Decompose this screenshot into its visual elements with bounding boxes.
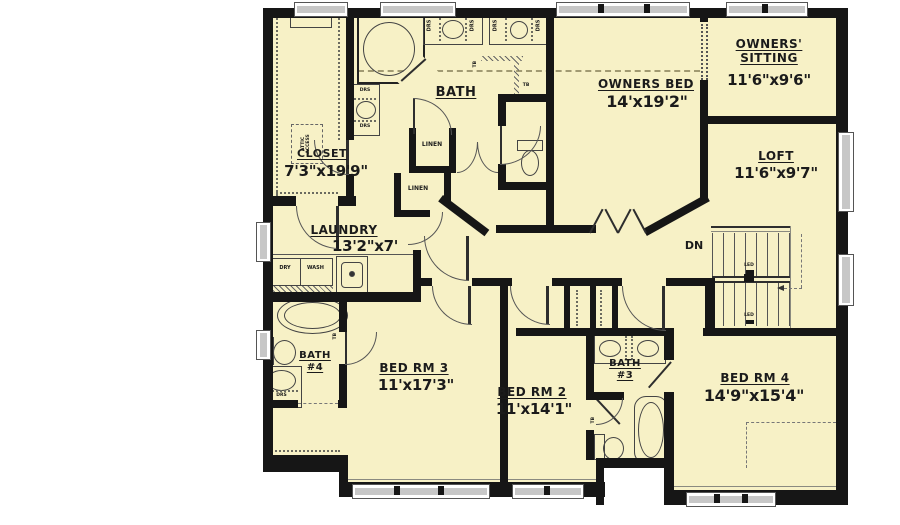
- stair-direction-path: [784, 288, 802, 289]
- wall: [586, 336, 594, 398]
- wall: [700, 116, 838, 124]
- wall: [590, 286, 596, 332]
- window: [686, 492, 776, 507]
- window-mullion: [644, 4, 650, 13]
- stair-rail: [711, 231, 791, 232]
- wall: [664, 336, 674, 360]
- wall: [498, 94, 506, 126]
- toilet: [603, 437, 624, 460]
- linen-label: LINEN: [412, 142, 452, 149]
- wall: [552, 278, 622, 286]
- room-label-laundry: LAUNDRY: [298, 224, 390, 238]
- room-label-closet: CLOSET: [282, 148, 362, 161]
- drawers-label: DRS: [537, 19, 542, 33]
- wall: [700, 8, 708, 22]
- drawers-label: DRS: [353, 89, 377, 94]
- wall: [596, 458, 672, 468]
- dryer: [271, 258, 301, 286]
- cased-opening: [701, 24, 703, 80]
- room-dims-closet: 7'3"x19'9": [264, 163, 388, 180]
- vanity-divider: [631, 336, 633, 360]
- vanity-divider: [625, 336, 627, 360]
- dryer-label: DRY: [271, 266, 299, 271]
- drawers-label: DRS: [471, 19, 476, 33]
- wall: [263, 400, 298, 408]
- wall: [263, 455, 347, 472]
- stair-direction-path: [801, 234, 802, 288]
- wall: [586, 430, 594, 460]
- wall: [612, 286, 618, 332]
- window: [352, 484, 490, 499]
- wall: [338, 400, 347, 408]
- room-label-bed4: BED RM 4: [706, 372, 804, 386]
- drawers-label: DRS: [428, 19, 433, 33]
- linen-label: LINEN: [398, 186, 438, 193]
- closet-shelf: [276, 192, 338, 194]
- wall: [420, 278, 432, 286]
- window: [294, 2, 348, 17]
- bathtub-basin: [638, 402, 664, 458]
- led-label: LED: [740, 314, 758, 319]
- wall: [564, 286, 570, 332]
- bathtub-basin: [284, 302, 341, 329]
- towel-bar-label: TB: [474, 58, 479, 70]
- wall: [472, 278, 512, 286]
- window: [256, 330, 271, 360]
- towel-bar-label: TB: [520, 84, 532, 89]
- sink: [599, 340, 621, 357]
- sink: [356, 101, 376, 119]
- led-mark: [746, 270, 754, 274]
- room-dims-laundry: 13'2"x7': [322, 238, 408, 255]
- exterior-notch: [604, 468, 664, 492]
- wall: [703, 328, 838, 336]
- stairs-down-label: DN: [680, 240, 708, 253]
- wall: [409, 166, 456, 173]
- wall: [516, 328, 672, 336]
- room-label-bath: BATH: [425, 86, 487, 101]
- closet-rod: [576, 290, 578, 326]
- led-mark: [746, 320, 754, 324]
- sink: [442, 20, 464, 39]
- closet-rod: [600, 290, 602, 326]
- closet-rod: [338, 14, 340, 140]
- drain: [349, 271, 355, 277]
- roof-dash-line: [746, 422, 836, 423]
- window-mullion: [742, 494, 748, 503]
- wall: [346, 8, 354, 140]
- room-label-bed3: BED RM 3: [368, 362, 460, 376]
- room-dims-bed4: 14'9"x15'4": [692, 387, 816, 405]
- window-mullion: [714, 494, 720, 503]
- wall: [413, 250, 421, 294]
- vanity-divider: [354, 120, 376, 122]
- room-dims-loft: 11'6"x9'7": [724, 165, 828, 182]
- window-mullion: [762, 4, 768, 13]
- wall: [498, 182, 548, 190]
- drawers-label: DRS: [265, 394, 298, 399]
- room-dims-owners-bed: 14'x19'2": [592, 93, 702, 111]
- window-seat-line: [345, 479, 603, 480]
- wall: [496, 225, 596, 233]
- window-mullion: [544, 486, 550, 495]
- vanity-divider: [465, 18, 467, 41]
- wall: [596, 458, 604, 505]
- window: [838, 254, 854, 306]
- drawers-label: DRS: [353, 125, 377, 130]
- room-dims-owners-sitting: 11'6"x9'6": [712, 72, 826, 89]
- led-label: LED: [740, 264, 758, 269]
- stair-rail: [711, 226, 791, 228]
- closet-rod: [268, 450, 340, 452]
- wall: [339, 300, 347, 332]
- room-label-bath3: BATH #3: [603, 358, 647, 381]
- window: [556, 2, 690, 17]
- room-dims-bed3: 11'x17'3": [370, 377, 462, 394]
- wall: [700, 124, 708, 200]
- room-label-bed2: BED RM 2: [486, 386, 578, 400]
- sink: [637, 340, 659, 357]
- window-seat-line: [666, 486, 838, 487]
- vanity-divider: [439, 18, 441, 41]
- cased-opening: [706, 24, 708, 80]
- wall: [546, 8, 554, 229]
- room-label-owners-sitting: OWNERS' SITTING: [722, 38, 816, 66]
- wall: [338, 196, 356, 206]
- floor-area: [664, 458, 840, 494]
- window-mullion: [394, 486, 400, 495]
- washer-label: WASH: [300, 266, 331, 271]
- towel-bar-label: TB: [592, 414, 597, 426]
- wall: [664, 392, 674, 460]
- room-dims-bed2: 11'x14'1": [488, 401, 580, 418]
- stairwell-edge: [790, 226, 791, 328]
- window: [256, 222, 271, 262]
- stair-newel: [744, 274, 754, 282]
- room-label-owners-bed: OWNERS BED: [588, 78, 704, 92]
- room-label-loft: LOFT: [748, 150, 804, 164]
- floor-plan: DRS DRS DRS DRS DRS DRS TB TB ATTIC ACCE…: [0, 0, 900, 525]
- vanity-divider: [505, 18, 507, 41]
- vanity-divider: [354, 98, 376, 100]
- roof-dash-line: [746, 422, 747, 468]
- wall: [705, 278, 715, 336]
- stair-direction-arrow: [777, 285, 784, 291]
- window: [380, 2, 456, 17]
- wall: [500, 286, 508, 482]
- room-label-bath4: BATH #4: [293, 350, 337, 373]
- towel-bar-label: TB: [334, 330, 339, 342]
- window-mullion: [598, 4, 604, 13]
- wall: [263, 196, 296, 206]
- sink: [510, 21, 528, 39]
- window: [838, 132, 854, 212]
- vanity-divider: [531, 18, 533, 41]
- washer: [300, 258, 333, 286]
- cased-opening: [298, 403, 338, 404]
- drawers-label: DRS: [494, 19, 499, 33]
- window-mullion: [438, 486, 444, 495]
